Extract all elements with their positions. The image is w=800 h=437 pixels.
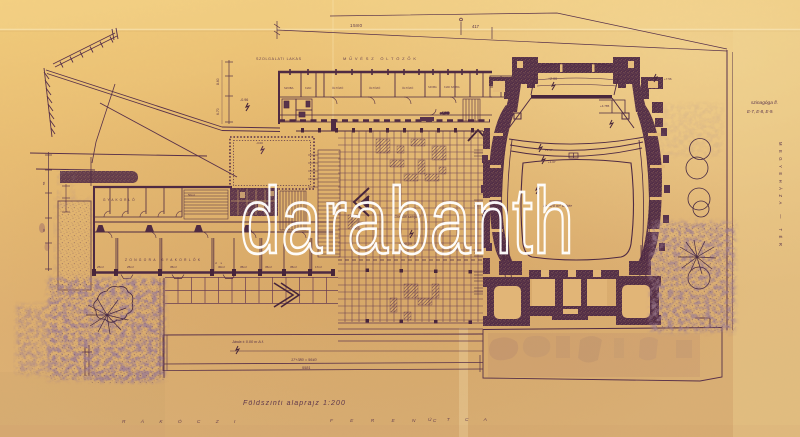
svg-text:25m²: 25m² [127,265,134,269]
svg-text:50m²: 50m² [188,193,195,197]
svg-text:-0.96: -0.96 [240,98,248,102]
svg-text:GYAKORLÓ: GYAKORLÓ [103,197,137,202]
svg-text:ÖLTÖZŐ: ÖLTÖZŐ [369,85,381,90]
svg-text:+4.785: +4.785 [600,104,610,108]
svg-text:5581: 5581 [302,366,310,370]
svg-text:SZOBA: SZOBA [428,85,437,89]
svg-text:darabanth: darabanth [240,168,574,273]
svg-text:KIAD: KIAD [305,86,311,90]
svg-text:ÖLTÖZŐ: ÖLTÖZŐ [332,85,344,90]
svg-text:szinagóga fl.: szinagóga fl. [751,100,778,106]
svg-text:25m²: 25m² [97,265,104,269]
svg-text:+4.640: +4.640 [440,111,450,115]
svg-text:R Á K Ó C Z I: R Á K Ó C Z I [122,418,242,425]
svg-text:417: 417 [472,24,480,29]
svg-text:+7.56: +7.56 [664,77,672,81]
svg-text:30m²: 30m² [218,265,225,269]
svg-text:+2.00: +2.00 [548,77,557,81]
svg-text:+1.67: +1.67 [545,148,553,152]
svg-text:35m²: 35m² [170,265,177,269]
svg-text:1580: 1580 [350,23,363,28]
svg-text:MEGYEHÁZA — TÉR: MEGYEHÁZA — TÉR [778,142,783,250]
svg-text:-3.00: -3.00 [256,141,263,145]
svg-text:E-7, E-8, E-9.: E-7, E-8, E-9. [747,109,774,114]
svg-text:SZOLGÁLATI LAKÁS: SZOLGÁLATI LAKÁS [256,57,302,61]
svg-text:ZONGORA GYAKORLÓK: ZONGORA GYAKORLÓK [125,257,202,262]
svg-text:Ú T C A: Ú T C A [428,416,494,423]
svg-text:6.70: 6.70 [216,108,220,115]
svg-text:55: 55 [42,181,46,185]
svg-text:8.60: 8.60 [216,78,220,85]
svg-text:MŰVÉSZ ÖLTÖZŐK: MŰVÉSZ ÖLTÖZŐK [343,56,419,61]
svg-text:17+380 = 5640: 17+380 = 5640 [291,358,317,362]
svg-text:ÖLTÖZŐ: ÖLTÖZŐ [402,85,414,90]
svg-text:Járda ± 0.00 m A.f.: Járda ± 0.00 m A.f. [231,340,264,344]
svg-text:KIAD SZOBA: KIAD SZOBA [444,85,460,89]
svg-text:SZOBA: SZOBA [284,86,294,90]
svg-text:Földszinti alaprajz 1:200: Földszinti alaprajz 1:200 [243,400,346,407]
